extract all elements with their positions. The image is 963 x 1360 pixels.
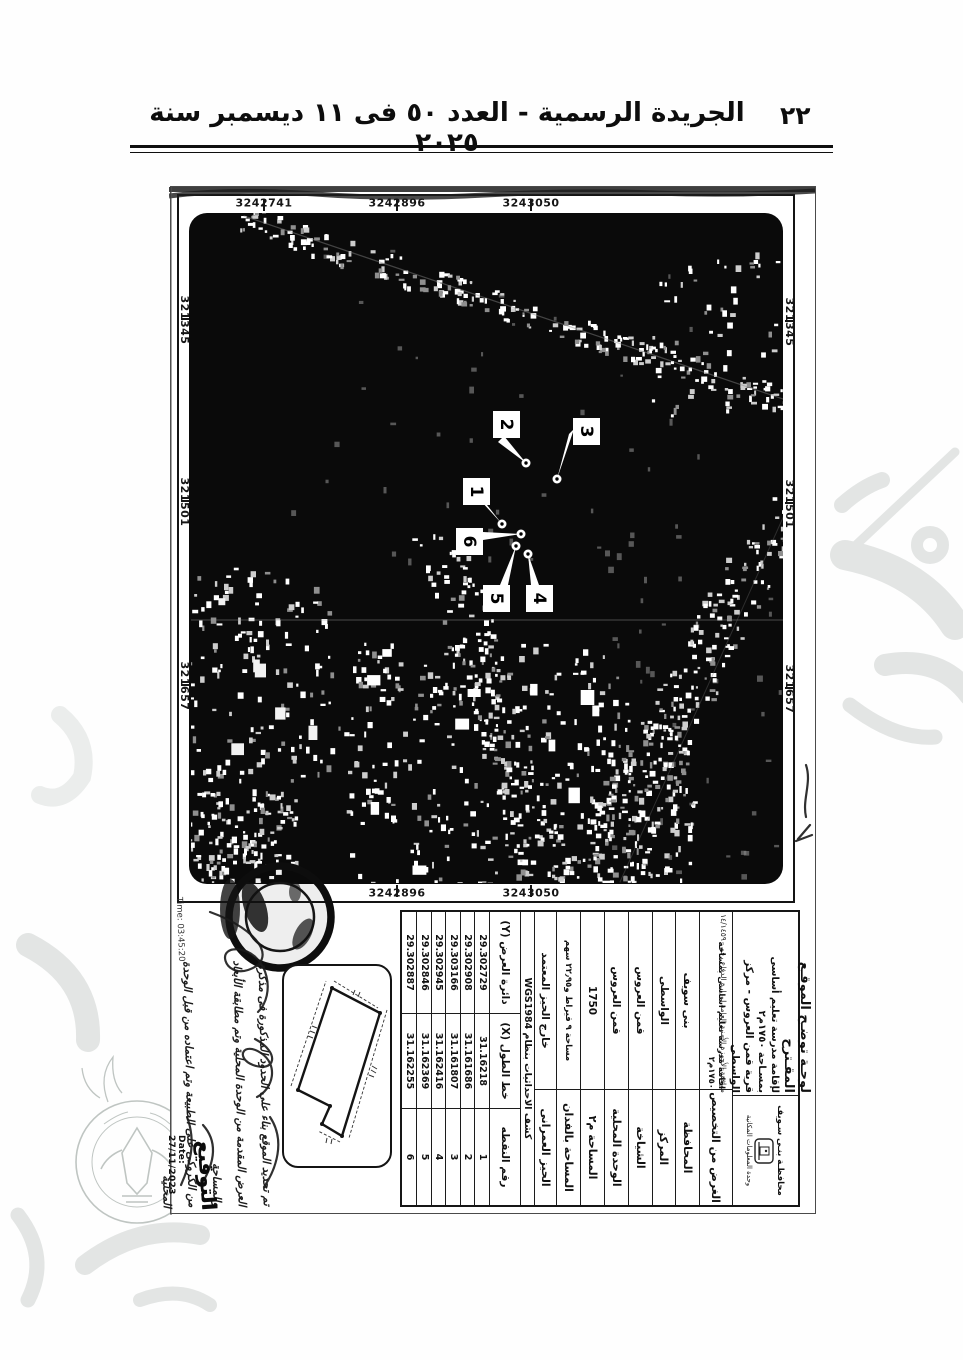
terrain-lines bbox=[191, 216, 790, 882]
title-block-table: محافظـة بنـى سـويف وحدة المعلومات المكان… bbox=[400, 910, 800, 1207]
site-point-dots bbox=[498, 459, 562, 559]
row-label: المساحة بالفدان bbox=[557, 1089, 580, 1205]
point-no: 5 bbox=[418, 1108, 432, 1205]
coord-row: 531.16236929.302846 bbox=[417, 912, 432, 1205]
map-marker-5: 5 bbox=[483, 585, 510, 612]
point-y: 29.302846 bbox=[418, 912, 432, 1013]
grid-label-easting-bottom-2: 321501 bbox=[178, 474, 191, 530]
row-label: المحافظة bbox=[676, 1089, 699, 1205]
table-row: الشياخةقمن العروس bbox=[628, 912, 652, 1205]
point-x: 31.16218 bbox=[476, 1013, 490, 1108]
marker-number: 2 bbox=[497, 419, 517, 431]
grid-label-easting-top-1: 321345 bbox=[783, 294, 796, 350]
row-value: بنى سويف bbox=[676, 912, 699, 1089]
point-x: 31.161686 bbox=[461, 1013, 475, 1108]
marker-number: 5 bbox=[487, 593, 507, 605]
sketch-vertex-dots bbox=[296, 986, 382, 1138]
marker-number: 3 bbox=[577, 426, 597, 438]
row-value: 1750 bbox=[581, 912, 604, 1089]
point-y: 29.302945 bbox=[432, 912, 446, 1013]
row-value: قمن العروس bbox=[605, 912, 628, 1089]
point-no: 1 bbox=[476, 1108, 490, 1205]
dimension-lines bbox=[291, 981, 387, 1142]
parcel-sketch-box bbox=[282, 964, 392, 1168]
spatial-unit-name: وحدة المعلومات المكانية bbox=[746, 1115, 754, 1186]
grid-label-easting-top-2: 321501 bbox=[783, 476, 796, 532]
point-x: 31.162416 bbox=[432, 1013, 446, 1108]
marker-number: 6 bbox=[460, 536, 480, 548]
row-value: خارج الحيز المعتمد bbox=[535, 912, 556, 1089]
margin-scribble bbox=[796, 765, 812, 841]
dimension-marks bbox=[308, 990, 377, 1144]
point-x: 31.162255 bbox=[402, 1013, 417, 1108]
row-label: الحيز العمرانى bbox=[535, 1089, 556, 1205]
point-no: 2 bbox=[461, 1108, 475, 1205]
table-row: الحيز العمرانىخارج الحيز المعتمد bbox=[534, 912, 556, 1205]
coord-row: 331.16180729.303166 bbox=[446, 912, 461, 1205]
title-line-1: لوحـة توضـح الموقـع المقـترح bbox=[780, 914, 813, 1093]
scanned-sheet: 3242741 3242896 3243050 3242896 3243050 … bbox=[170, 186, 816, 1214]
governorate-name: محافظـة بنـى سـويف bbox=[776, 1105, 786, 1195]
row-label: الوحدة المحلية bbox=[605, 1089, 628, 1205]
date-stamp: Date: 27/11/2023 bbox=[166, 1135, 186, 1213]
marker-number: 4 bbox=[530, 593, 550, 605]
marker-number: 1 bbox=[467, 486, 487, 498]
grid-label-easting-bottom-3: 321657 bbox=[178, 658, 191, 714]
point-y: 29.303166 bbox=[447, 912, 461, 1013]
coord-header-x: خط الطول (X) bbox=[490, 1013, 520, 1108]
title-line-2: لإقامة مدرسة تعليم أساسى بمسـاحة ١٧٥٠م٢ bbox=[755, 914, 780, 1093]
row-value: قمن العروس bbox=[629, 912, 652, 1089]
row-label: الشياخة bbox=[629, 1089, 652, 1205]
title-line-3: قرية قمن العروس - مركز الواسطى bbox=[728, 914, 754, 1093]
row-label: الغرض من التخصيص bbox=[700, 1089, 732, 1205]
map-marker-4: 4 bbox=[526, 585, 553, 612]
header-rule bbox=[130, 145, 833, 153]
table-row: الوحدة المحليةقمن العروس bbox=[604, 912, 628, 1205]
point-no: 4 bbox=[432, 1108, 446, 1205]
grid-label-easting-top-3: 321657 bbox=[783, 661, 796, 717]
laurel-sprig bbox=[82, 1057, 122, 1102]
coord-header-y: دائرة العرض (Y) bbox=[490, 912, 520, 1013]
landscape-content: 3242741 3242896 3243050 3242896 3243050 … bbox=[170, 186, 816, 1214]
map-marker-2: 2 bbox=[493, 411, 520, 438]
marker-leaders bbox=[481, 429, 574, 585]
row-label: المركز bbox=[653, 1089, 675, 1205]
grid-label-northing-right-1: 3242896 bbox=[369, 887, 425, 900]
grid-label-northing-right-2: 3243050 bbox=[503, 887, 559, 900]
wgs-header: كشف الاحداثيات بنظام WGS1984 bbox=[520, 912, 534, 1205]
row-label: المساحة م٢ bbox=[581, 1089, 604, 1205]
grid-ticks bbox=[181, 199, 793, 897]
table-row: المساحة بالفدانمساحة ٩ قيراط و٢٢٫٩٥ سهم bbox=[556, 912, 580, 1205]
page-number: ٢٢ bbox=[780, 101, 830, 130]
parcel-sketch bbox=[285, 966, 390, 1165]
map-marker-3: 3 bbox=[573, 418, 600, 445]
coord-header-point: رقم النقطه bbox=[490, 1108, 520, 1205]
point-x: 31.161807 bbox=[447, 1013, 461, 1108]
row-value: الواسطى bbox=[653, 912, 675, 1089]
grid-label-northing-2: 3242896 bbox=[369, 197, 425, 210]
table-row: المحافظةبنى سويف bbox=[675, 912, 699, 1205]
coord-header-row: رقم النقطه خط الطول (X) دائرة العرض (Y) bbox=[489, 912, 520, 1205]
table-row: المركزالواسطى bbox=[652, 912, 675, 1205]
coord-row: 631.16225529.302887 bbox=[402, 912, 417, 1205]
grid-label-easting-bottom-1: 321345 bbox=[178, 292, 191, 348]
point-y: 29.302908 bbox=[461, 912, 475, 1013]
map-marker-1: 1 bbox=[463, 478, 490, 505]
point-no: 3 bbox=[447, 1108, 461, 1205]
point-y: 29.302887 bbox=[402, 912, 417, 1013]
point-y: 29.302729 bbox=[476, 912, 490, 1013]
title-row: محافظـة بنـى سـويف وحدة المعلومات المكان… bbox=[732, 912, 798, 1205]
coord-row: 231.16168629.302908 bbox=[460, 912, 475, 1205]
table-row: الغرض من التخصيصاقامة مدرسة تعليم اساسى … bbox=[699, 912, 732, 1205]
gazette-page: ٢٢ الجريدة الرسمية - العدد ٥٠ فى ١١ ديسم… bbox=[0, 0, 963, 1360]
map-marker-6: 6 bbox=[456, 528, 483, 555]
urban-speckles bbox=[174, 211, 796, 902]
point-no: 6 bbox=[402, 1108, 417, 1205]
governorate-logo-icon bbox=[755, 1138, 775, 1164]
coord-row: 431.16241629.302945 bbox=[431, 912, 446, 1205]
grid-label-northing-1: 3242741 bbox=[236, 197, 292, 210]
row-value: مساحة ٩ قيراط و٢٢٫٩٥ سهم bbox=[557, 912, 580, 1089]
row-value: اقامة مدرسة تعليم اساسى بمساحة ١٧٥٠م٢ bbox=[700, 912, 732, 1089]
point-x: 31.162369 bbox=[418, 1013, 432, 1108]
drawing-title: لوحـة توضـح الموقـع المقـترح لإقامة مدرس… bbox=[733, 912, 798, 1095]
table-row: المساحة م٢1750 bbox=[580, 912, 604, 1205]
signature-label: التوقيع bbox=[193, 1139, 222, 1211]
coord-row: 131.1621829.302729 bbox=[475, 912, 490, 1205]
grid-label-northing-3: 3243050 bbox=[503, 197, 559, 210]
governorate-cell: محافظـة بنـى سـويف وحدة المعلومات المكان… bbox=[733, 1095, 798, 1205]
